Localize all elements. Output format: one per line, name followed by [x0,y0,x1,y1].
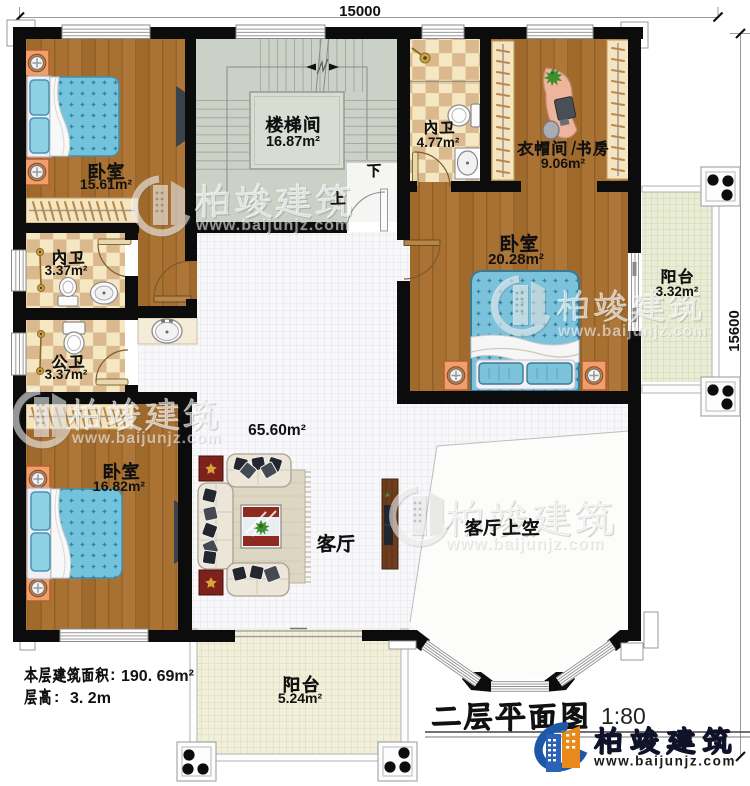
svg-text:16.87m²: 16.87m² [266,134,320,150]
svg-text:9.06m²: 9.06m² [541,155,586,171]
svg-text:16.82m²: 16.82m² [93,478,145,494]
svg-text:65.60m²: 65.60m² [248,422,306,439]
svg-text:15000: 15000 [339,3,381,20]
svg-text:4.77m²: 4.77m² [417,135,460,150]
svg-text:20.28m²: 20.28m² [488,251,544,268]
svg-text:3.37m²: 3.37m² [45,367,88,382]
svg-text:190. 69m²: 190. 69m² [121,668,194,685]
svg-text::: : [110,665,116,684]
svg-text:15600: 15600 [726,310,743,352]
svg-text:www.baijunjz.com: www.baijunjz.com [593,754,736,769]
svg-text:www.baijunjz.com: www.baijunjz.com [557,323,708,340]
svg-text:www.baijunjz.com: www.baijunjz.com [71,430,222,447]
svg-text:www.baijunjz.com: www.baijunjz.com [195,217,350,234]
svg-text::: : [54,689,59,706]
svg-text:www.baijunjz.com: www.baijunjz.com [445,535,604,553]
svg-text:3.32m²: 3.32m² [656,284,699,299]
svg-text:15.61m²: 15.61m² [80,176,132,192]
svg-text:3. 2m: 3. 2m [70,690,111,707]
svg-text:3.37m²: 3.37m² [45,263,88,278]
svg-text:1:80: 1:80 [601,703,646,729]
svg-text:5.24m²: 5.24m² [278,690,323,706]
